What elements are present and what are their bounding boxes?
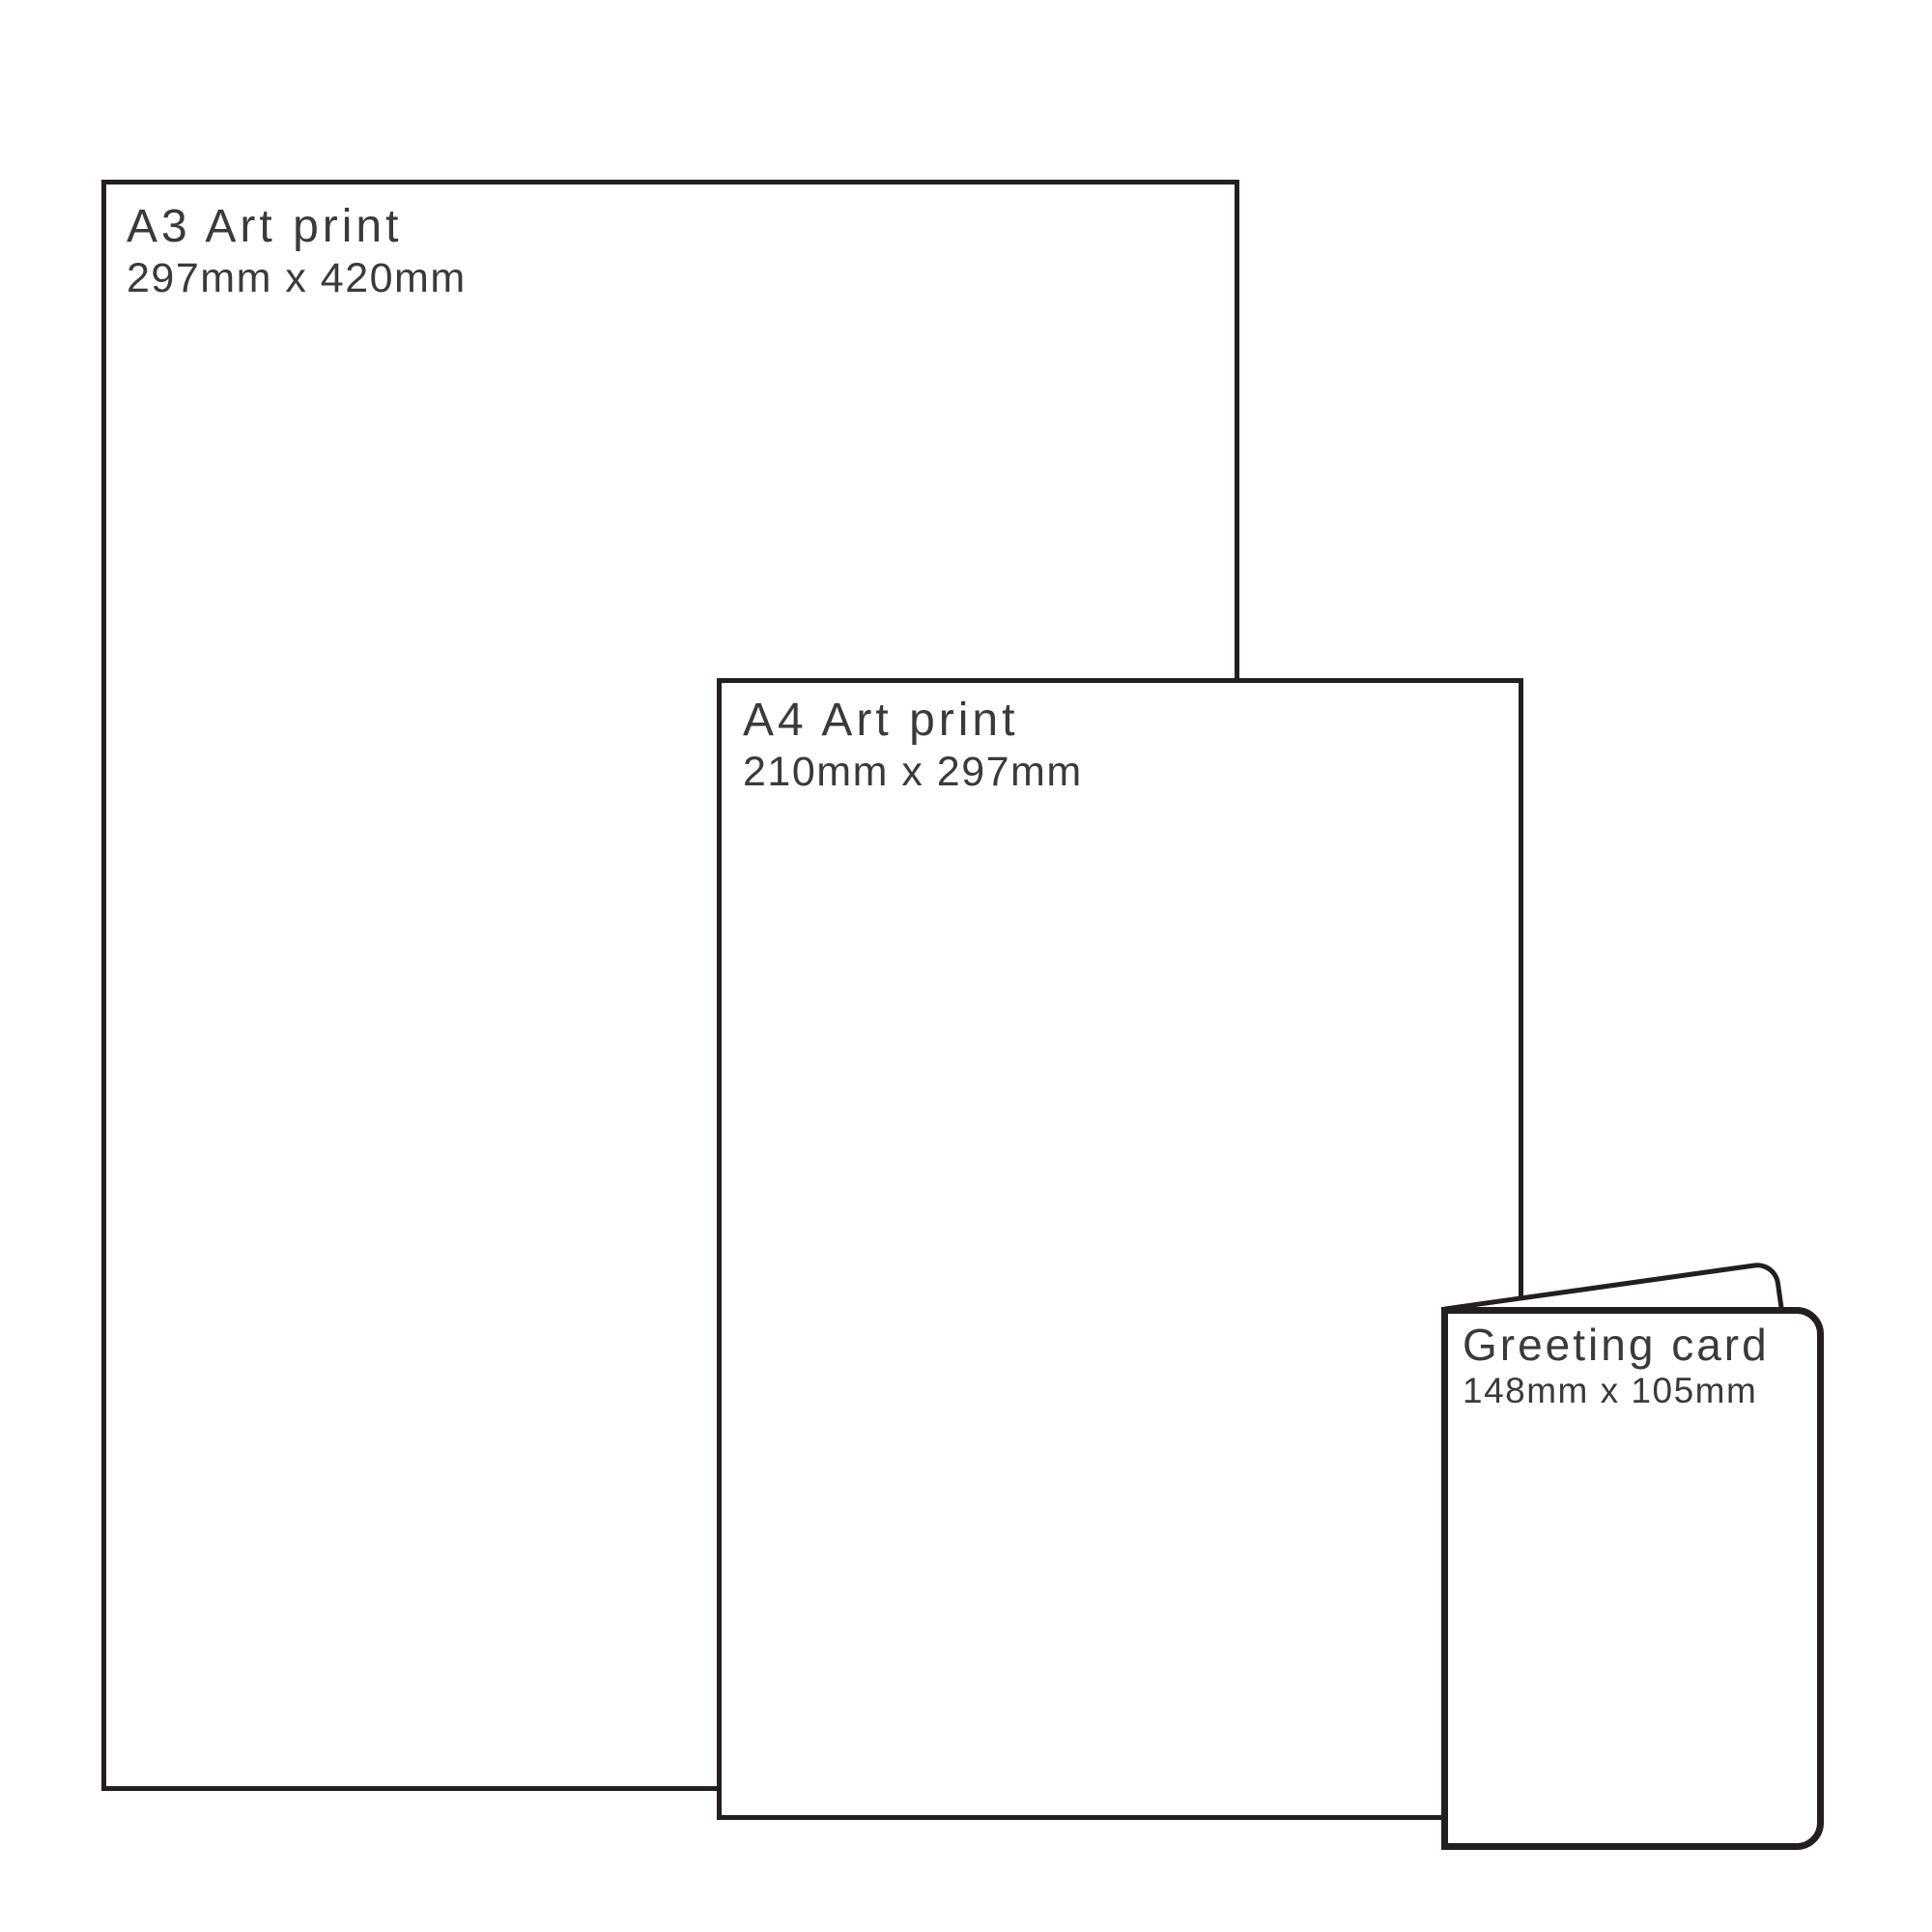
a3-print-title: A3 Art print: [127, 200, 467, 254]
a4-print-outline: A4 Art print 210mm x 297mm: [717, 678, 1523, 1820]
greeting-card-dimensions: 148mm x 105mm: [1463, 1369, 1770, 1413]
a4-print-title: A4 Art print: [743, 694, 1083, 748]
greeting-card-front: Greeting card 148mm x 105mm: [1441, 1307, 1824, 1850]
a3-print-label: A3 Art print 297mm x 420mm: [127, 200, 467, 302]
size-comparison-diagram: A3 Art print 297mm x 420mm A4 Art print …: [0, 0, 1932, 1932]
greeting-card-title: Greeting card: [1463, 1321, 1770, 1369]
a3-print-dimensions: 297mm x 420mm: [127, 254, 467, 302]
a4-print-dimensions: 210mm x 297mm: [743, 748, 1083, 796]
a4-print-label: A4 Art print 210mm x 297mm: [743, 694, 1083, 796]
greeting-card-label: Greeting card 148mm x 105mm: [1463, 1321, 1770, 1413]
